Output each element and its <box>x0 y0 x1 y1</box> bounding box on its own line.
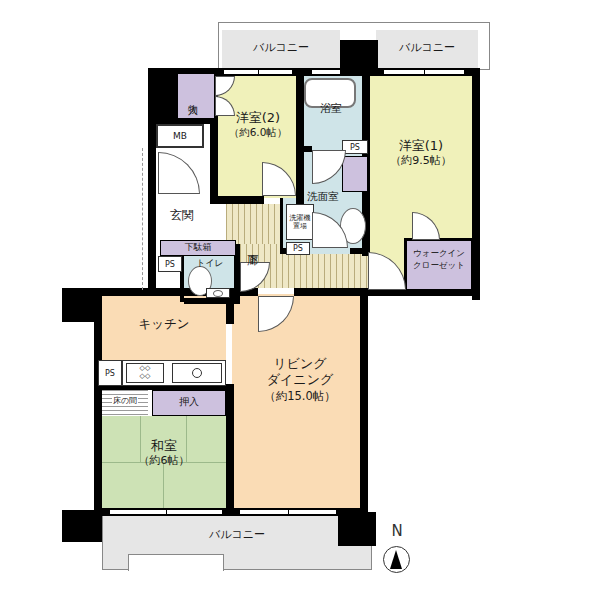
kitchen-label: キッチン <box>102 316 226 332</box>
wall <box>62 288 102 322</box>
ps-label: PS <box>350 143 360 152</box>
tank-oval <box>213 290 223 297</box>
pipe-space: PS <box>98 360 122 386</box>
tokonoma-label: 床の間 <box>102 396 148 406</box>
ps-label: PS <box>293 244 303 253</box>
ps-label: PS <box>105 369 115 378</box>
compass-north-label: N <box>382 522 412 541</box>
oshiire-label: 押入 <box>152 396 226 409</box>
bath-label: 浴室 <box>298 102 364 116</box>
getabako-label: 下駄箱 <box>160 242 236 253</box>
western2-label: 洋室(2) （約6.0帖） <box>218 110 298 139</box>
meter-box: MB <box>156 124 204 148</box>
mb-label: MB <box>173 131 187 141</box>
washroom-label: 洗面室 <box>282 190 364 203</box>
pipe-space: PS <box>158 256 182 272</box>
laundry-space: 洗濯機 置場 <box>286 204 314 240</box>
window <box>312 68 340 76</box>
door-arc-entry <box>158 152 200 194</box>
compass-needle <box>390 550 402 569</box>
window <box>384 68 464 76</box>
balcony-bottom-label: バルコニー <box>102 528 372 542</box>
sink-icon <box>172 363 222 383</box>
wall <box>226 294 234 324</box>
duct-closet <box>342 156 368 192</box>
laundry-label: 洗濯機 <box>290 214 311 222</box>
pipe-space: PS <box>286 242 310 255</box>
compass-icon <box>383 546 410 573</box>
laundry-label: 置場 <box>293 222 307 230</box>
sink-drain <box>192 368 202 378</box>
window <box>110 508 222 516</box>
tatami-line <box>163 462 164 510</box>
balcony-top-left-label: バルコニー <box>222 41 340 55</box>
pillar <box>340 40 378 70</box>
wall <box>296 146 312 152</box>
wall <box>280 198 283 254</box>
washitsu-label: 和室 （約6帖） <box>102 438 226 468</box>
wall <box>62 510 102 542</box>
balcony-top-right-label: バルコニー <box>376 41 478 55</box>
stove-icon: ◇◇◇◇ <box>126 363 164 383</box>
wall <box>210 196 264 204</box>
wall <box>350 248 364 254</box>
wic-label: ウォークイン クローゼット <box>406 248 472 272</box>
western1-label: 洋室(1) （約9.5帖） <box>368 138 474 168</box>
corridor-right <box>282 254 368 288</box>
window <box>224 68 292 76</box>
balcony-bottom-notch <box>128 554 224 571</box>
storage-label: 物入 <box>186 78 199 116</box>
ps-label: PS <box>165 260 175 269</box>
toilet-label: トイレ <box>186 258 234 269</box>
toilet-tank <box>206 288 230 298</box>
corridor-label: 廊下 <box>245 224 259 268</box>
wall <box>226 390 234 510</box>
genkan-label: 玄関 <box>152 208 212 223</box>
wall <box>94 288 102 516</box>
window <box>240 508 336 516</box>
floor-plan: MB 洗濯機 置場 PS PS PS PS ◇◇◇◇ バルコニー バルコニー バ… <box>0 0 600 600</box>
wall <box>294 288 368 296</box>
dashed-boundary <box>142 148 143 290</box>
living-dining-label: リビング ダイニング （約15.0帖） <box>232 356 368 403</box>
